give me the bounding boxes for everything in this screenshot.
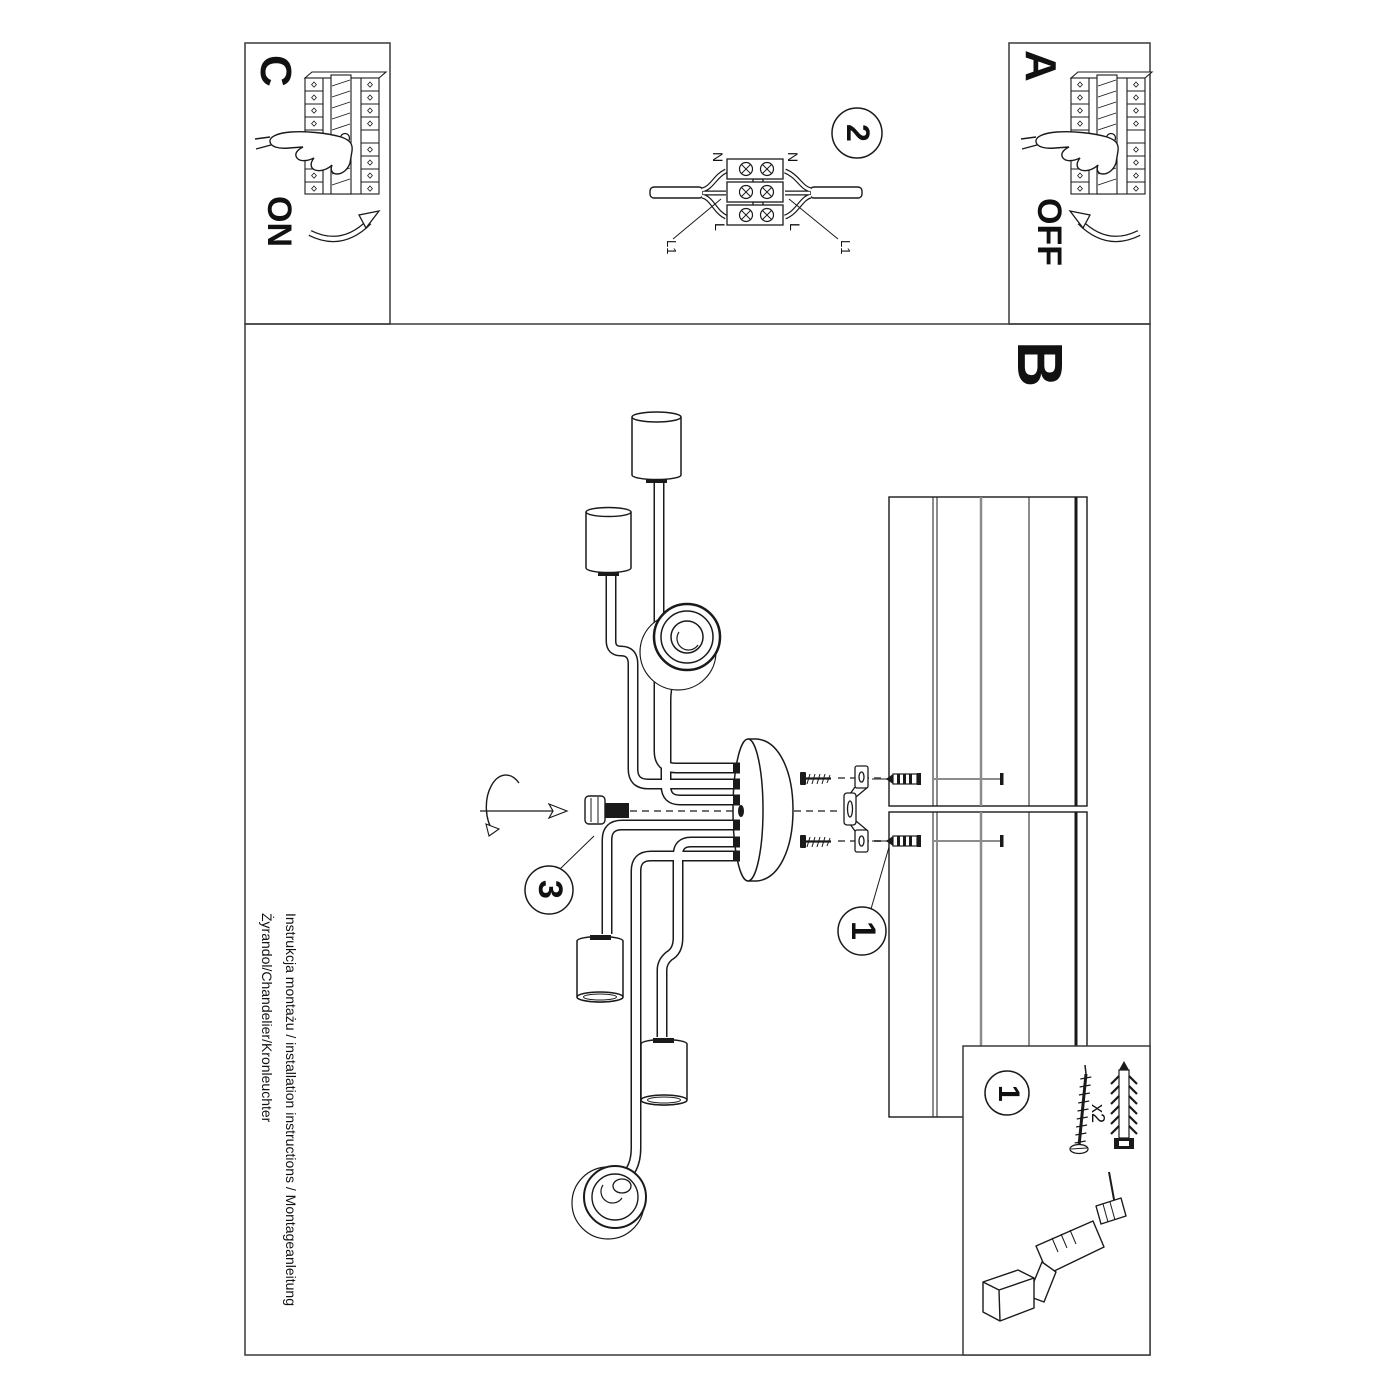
step-2-number: 2 (842, 124, 874, 142)
parts-step-number: 1 (993, 1085, 1023, 1102)
wire-label-l1-left: L1 (665, 240, 678, 254)
wire-label-n-right: N (786, 152, 800, 162)
step-c-label: C (253, 55, 297, 87)
shade-lower-mid (641, 1038, 687, 1105)
chandelier-illustration (572, 412, 793, 1239)
shade-upper-left (586, 508, 631, 577)
wire-label-l-left: L (713, 223, 727, 231)
instruction-sheet: { "document": { "footer_line1": "Instruk… (0, 0, 1400, 1400)
step-a-action: OFF (1032, 198, 1066, 266)
rotate-arrow-icon (480, 775, 567, 836)
switch-on-arrow-icon (310, 211, 379, 239)
step-a-label: A (1018, 50, 1062, 82)
section-b-label: B (1008, 341, 1072, 387)
mounting-screw-icon (800, 772, 831, 848)
line-art (0, 0, 1400, 1400)
step-3-number: 3 (533, 880, 567, 899)
terminal-block-icon (650, 159, 862, 239)
shade-bottom-view (572, 1166, 646, 1239)
wire-label-n-left: N (711, 152, 725, 162)
shade-top (632, 412, 681, 483)
step-1-leader (871, 847, 889, 909)
mounting-bracket-icon (844, 766, 868, 852)
footer-title: Instrukcja montażu / installation instru… (284, 913, 298, 1306)
cable-right (810, 187, 862, 198)
footer-product: Żyrandol/Chandelier/Kronleuchter (260, 913, 274, 1122)
step-3-leader (560, 836, 594, 869)
wire-label-l1-right: L1 (839, 240, 852, 254)
cable-left (650, 187, 703, 198)
wire-label-l-right: L (788, 223, 802, 231)
step-c-action: ON (262, 196, 296, 247)
shade-socket-view (640, 604, 720, 690)
parts-quantity-label: x2 (1089, 1104, 1107, 1123)
step-1-number: 1 (846, 921, 880, 940)
ceiling-illustration (872, 497, 1087, 1117)
shade-lower-left (577, 935, 623, 1002)
pressing-hand-icon-c (255, 132, 352, 174)
switch-off-arrow-icon (1070, 211, 1139, 239)
pressing-hand-icon-a (1021, 132, 1118, 174)
